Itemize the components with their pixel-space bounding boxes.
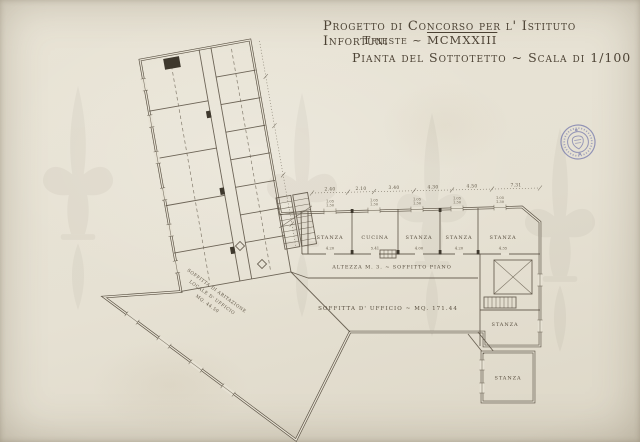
diagonal-annotation: SOFFITTA DI ABITAZIONE LOCALE D' UFFICIO… bbox=[176, 268, 246, 327]
svg-text:1.30: 1.30 bbox=[496, 200, 505, 204]
corridor-note: ALTEZZA M. 3. ~ SOFFITTO PIANO bbox=[331, 265, 451, 271]
room-label: STANZA bbox=[495, 376, 522, 382]
drawing-title-line2: Trieste ~ MCMXXIII bbox=[340, 33, 520, 47]
room-label: STANZA bbox=[490, 235, 517, 241]
room-label: STANZA bbox=[406, 235, 433, 241]
left-wing bbox=[137, 39, 302, 292]
svg-text:1.30: 1.30 bbox=[370, 203, 379, 207]
floor-plan-drawing: 2.40 2.10 3.40 4.30 4.50 7.31 1.05 1.30 … bbox=[0, 0, 640, 442]
dimension-label: 3.40 bbox=[389, 186, 400, 191]
dimension-label: 4.50 bbox=[467, 185, 478, 190]
dimension-chain bbox=[260, 41, 296, 246]
drawing-title-line3: Pianta del Sottotetto ~ Scala di 1/100 bbox=[352, 50, 631, 65]
room-label: STANZA bbox=[492, 322, 519, 328]
title-year-roman: MCMXXIII bbox=[427, 33, 497, 47]
dimension-label: 2.10 bbox=[356, 187, 367, 192]
chimney-marker bbox=[235, 241, 244, 250]
dimension-label: 4.30 bbox=[428, 185, 439, 190]
shaft-solid-block bbox=[163, 56, 181, 70]
room-label: CUCINA bbox=[361, 235, 388, 241]
room-dimension: 4.20 bbox=[326, 246, 335, 251]
room-dimension: 4.20 bbox=[455, 246, 464, 251]
svg-text:1.30: 1.30 bbox=[326, 204, 335, 208]
chimney-marker bbox=[257, 259, 266, 268]
dimension-label: 7.31 bbox=[511, 184, 522, 189]
attic-label: SOFFITTA D' UFFICIO ~ MQ. 171.44 bbox=[318, 306, 458, 312]
svg-text:1.30: 1.30 bbox=[413, 202, 422, 206]
mini-stair bbox=[484, 297, 516, 308]
dimension-label: 2.40 bbox=[325, 188, 336, 193]
title-city: Trieste ~ bbox=[363, 33, 427, 47]
room-label: STANZA bbox=[446, 235, 473, 241]
svg-text:1.30: 1.30 bbox=[453, 201, 462, 205]
room-label: STANZA bbox=[317, 235, 344, 241]
detached-room bbox=[468, 332, 534, 402]
room-dimension: 4.35 bbox=[499, 246, 508, 251]
room-dimension: 4.00 bbox=[415, 246, 424, 251]
room-dimension: 5.41 bbox=[371, 246, 379, 251]
